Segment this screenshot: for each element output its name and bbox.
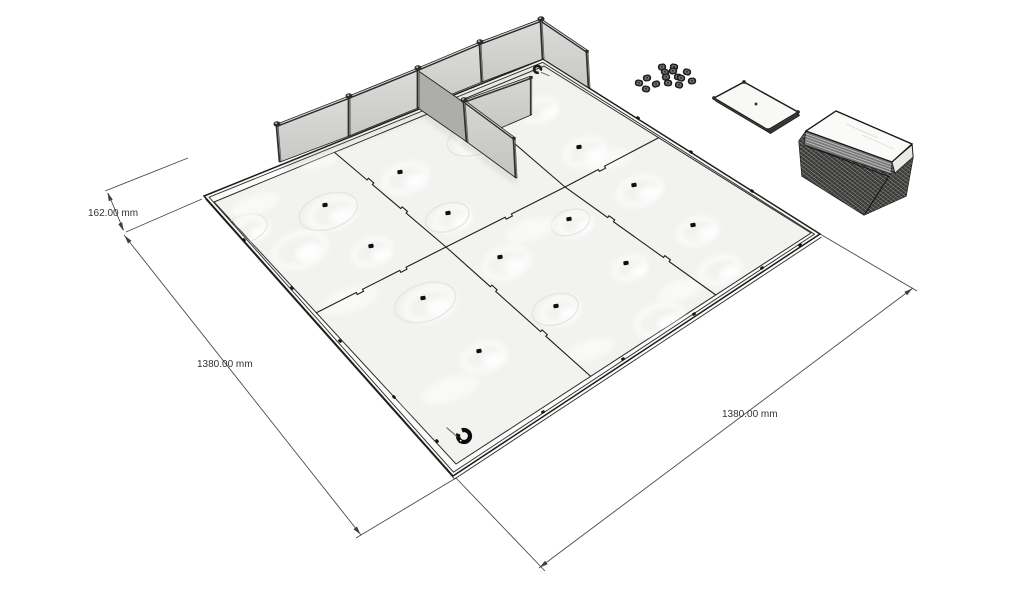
svg-text:1380.00 mm: 1380.00 mm [197, 359, 253, 370]
svg-text:1380.00 mm: 1380.00 mm [722, 409, 778, 420]
svg-text:162.00 mm: 162.00 mm [88, 208, 138, 219]
